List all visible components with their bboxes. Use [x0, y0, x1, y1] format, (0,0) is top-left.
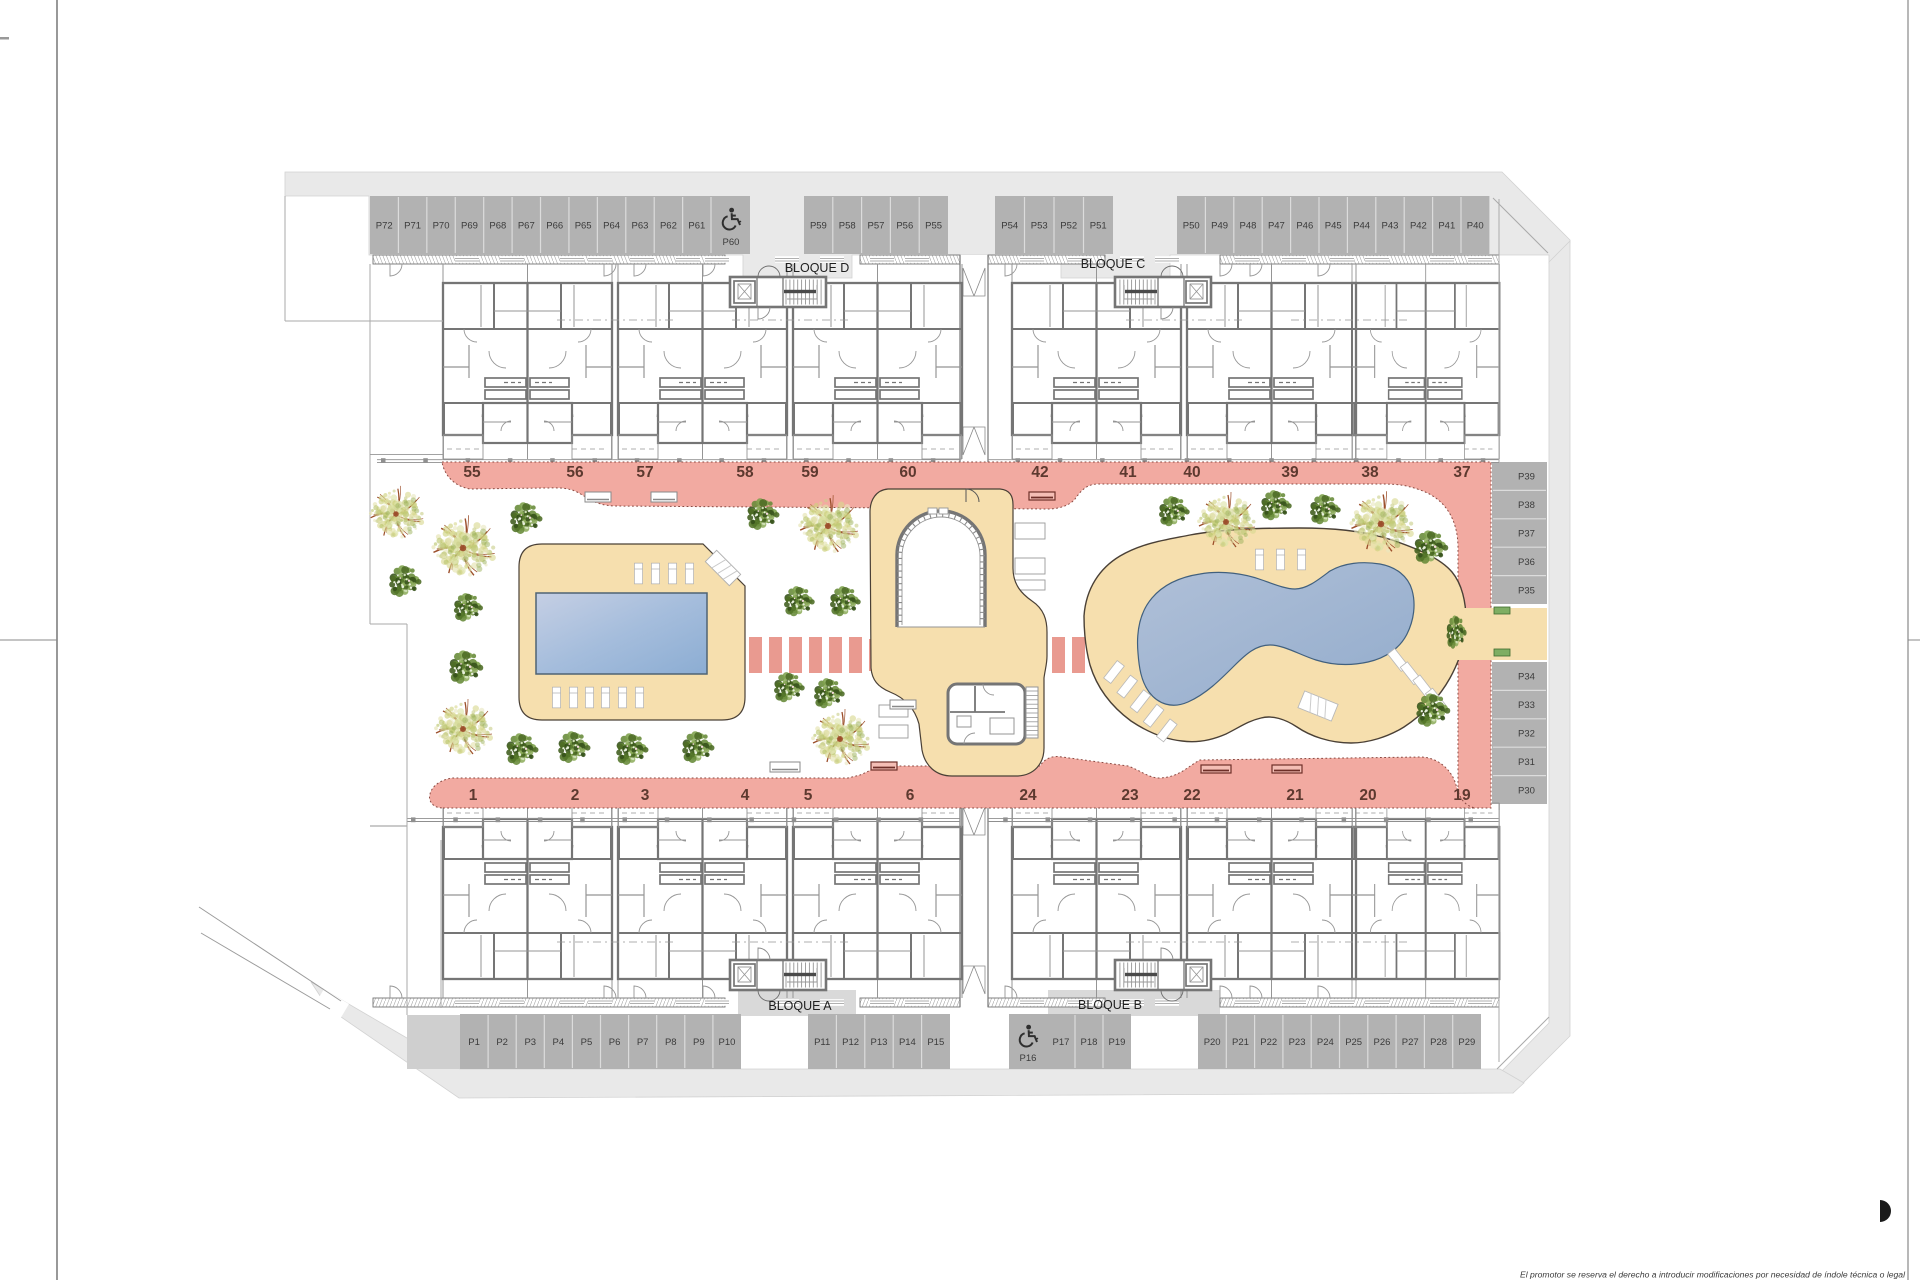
svg-text:P71: P71 [404, 221, 421, 232]
svg-text:P35: P35 [1518, 585, 1535, 596]
svg-text:P64: P64 [603, 221, 620, 232]
svg-text:P57: P57 [868, 221, 885, 232]
svg-text:5: 5 [804, 787, 813, 804]
svg-text:56: 56 [566, 464, 584, 481]
svg-text:P21: P21 [1232, 1037, 1249, 1048]
svg-text:P8: P8 [665, 1037, 677, 1048]
svg-text:59: 59 [801, 464, 819, 481]
svg-text:P65: P65 [575, 221, 592, 232]
svg-text:P1: P1 [468, 1037, 480, 1048]
svg-text:P25: P25 [1345, 1037, 1362, 1048]
svg-text:P16: P16 [1020, 1053, 1037, 1064]
svg-text:P31: P31 [1518, 757, 1535, 768]
svg-text:40: 40 [1183, 464, 1200, 481]
svg-text:P50: P50 [1183, 221, 1200, 232]
svg-text:P4: P4 [553, 1037, 565, 1048]
svg-text:P22: P22 [1260, 1037, 1277, 1048]
svg-text:P28: P28 [1430, 1037, 1447, 1048]
svg-text:P44: P44 [1353, 221, 1370, 232]
svg-text:P34: P34 [1518, 672, 1535, 683]
svg-text:P12: P12 [842, 1037, 859, 1048]
svg-text:P63: P63 [632, 221, 649, 232]
svg-text:P45: P45 [1325, 221, 1342, 232]
svg-text:20: 20 [1359, 787, 1376, 804]
svg-text:P56: P56 [896, 221, 913, 232]
svg-text:P20: P20 [1204, 1037, 1221, 1048]
svg-text:P40: P40 [1467, 221, 1484, 232]
svg-text:P2: P2 [496, 1037, 508, 1048]
svg-text:P68: P68 [489, 221, 506, 232]
svg-text:55: 55 [463, 464, 481, 481]
svg-text:P59: P59 [810, 221, 827, 232]
svg-text:P39: P39 [1518, 472, 1535, 483]
svg-text:P61: P61 [688, 221, 705, 232]
svg-text:P36: P36 [1518, 557, 1535, 568]
svg-text:P60: P60 [723, 237, 740, 248]
svg-text:P5: P5 [581, 1037, 593, 1048]
svg-text:19: 19 [1453, 787, 1471, 804]
svg-text:P7: P7 [637, 1037, 649, 1048]
svg-text:P52: P52 [1060, 221, 1077, 232]
svg-text:57: 57 [636, 464, 653, 481]
svg-text:P62: P62 [660, 221, 677, 232]
svg-text:P26: P26 [1373, 1037, 1390, 1048]
svg-text:P14: P14 [899, 1037, 916, 1048]
svg-text:P33: P33 [1518, 700, 1535, 711]
svg-text:P70: P70 [433, 221, 450, 232]
svg-text:P37: P37 [1518, 529, 1535, 540]
svg-text:P18: P18 [1081, 1037, 1098, 1048]
svg-text:P13: P13 [871, 1037, 888, 1048]
svg-text:P51: P51 [1090, 221, 1107, 232]
svg-text:4: 4 [741, 787, 750, 804]
svg-text:BLOQUE B: BLOQUE B [1078, 998, 1142, 1012]
svg-text:P27: P27 [1402, 1037, 1419, 1048]
svg-text:58: 58 [736, 464, 754, 481]
svg-text:23: 23 [1121, 787, 1139, 804]
svg-text:22: 22 [1183, 787, 1200, 804]
svg-text:38: 38 [1361, 464, 1379, 481]
svg-text:P6: P6 [609, 1037, 621, 1048]
svg-text:P24: P24 [1317, 1037, 1334, 1048]
svg-text:39: 39 [1281, 464, 1299, 481]
svg-text:P43: P43 [1382, 221, 1399, 232]
svg-text:BLOQUE A: BLOQUE A [768, 999, 832, 1013]
svg-text:P49: P49 [1211, 221, 1228, 232]
svg-text:P72: P72 [376, 221, 393, 232]
svg-text:2: 2 [571, 787, 580, 804]
svg-text:42: 42 [1031, 464, 1048, 481]
svg-text:P54: P54 [1001, 221, 1018, 232]
svg-text:BLOQUE C: BLOQUE C [1081, 257, 1146, 271]
svg-text:P48: P48 [1240, 221, 1257, 232]
svg-text:P66: P66 [546, 221, 563, 232]
svg-text:P3: P3 [524, 1037, 536, 1048]
svg-text:24: 24 [1019, 787, 1037, 804]
svg-text:37: 37 [1453, 464, 1470, 481]
svg-text:P69: P69 [461, 221, 478, 232]
svg-text:1: 1 [469, 787, 478, 804]
svg-text:P55: P55 [925, 221, 942, 232]
svg-text:P15: P15 [927, 1037, 944, 1048]
svg-text:6: 6 [906, 787, 915, 804]
svg-text:41: 41 [1119, 464, 1137, 481]
svg-text:P47: P47 [1268, 221, 1285, 232]
svg-text:P53: P53 [1031, 221, 1048, 232]
svg-text:P30: P30 [1518, 785, 1535, 796]
svg-text:P32: P32 [1518, 729, 1535, 740]
svg-text:P17: P17 [1053, 1037, 1070, 1048]
svg-text:BLOQUE D: BLOQUE D [785, 261, 850, 275]
svg-text:P58: P58 [839, 221, 856, 232]
svg-text:P29: P29 [1458, 1037, 1475, 1048]
svg-text:P11: P11 [814, 1037, 830, 1048]
svg-text:3: 3 [641, 787, 650, 804]
svg-text:P67: P67 [518, 221, 535, 232]
svg-text:60: 60 [899, 464, 916, 481]
svg-text:P41: P41 [1438, 221, 1455, 232]
svg-text:P10: P10 [718, 1037, 735, 1048]
svg-text:21: 21 [1286, 787, 1304, 804]
svg-text:P9: P9 [693, 1037, 705, 1048]
svg-text:P19: P19 [1109, 1037, 1126, 1048]
svg-text:P23: P23 [1289, 1037, 1306, 1048]
svg-text:P46: P46 [1296, 221, 1313, 232]
svg-text:El promotor se reserva el dere: El promotor se reserva el derecho a intr… [1520, 1270, 1906, 1280]
svg-text:P38: P38 [1518, 500, 1535, 511]
svg-text:P42: P42 [1410, 221, 1427, 232]
